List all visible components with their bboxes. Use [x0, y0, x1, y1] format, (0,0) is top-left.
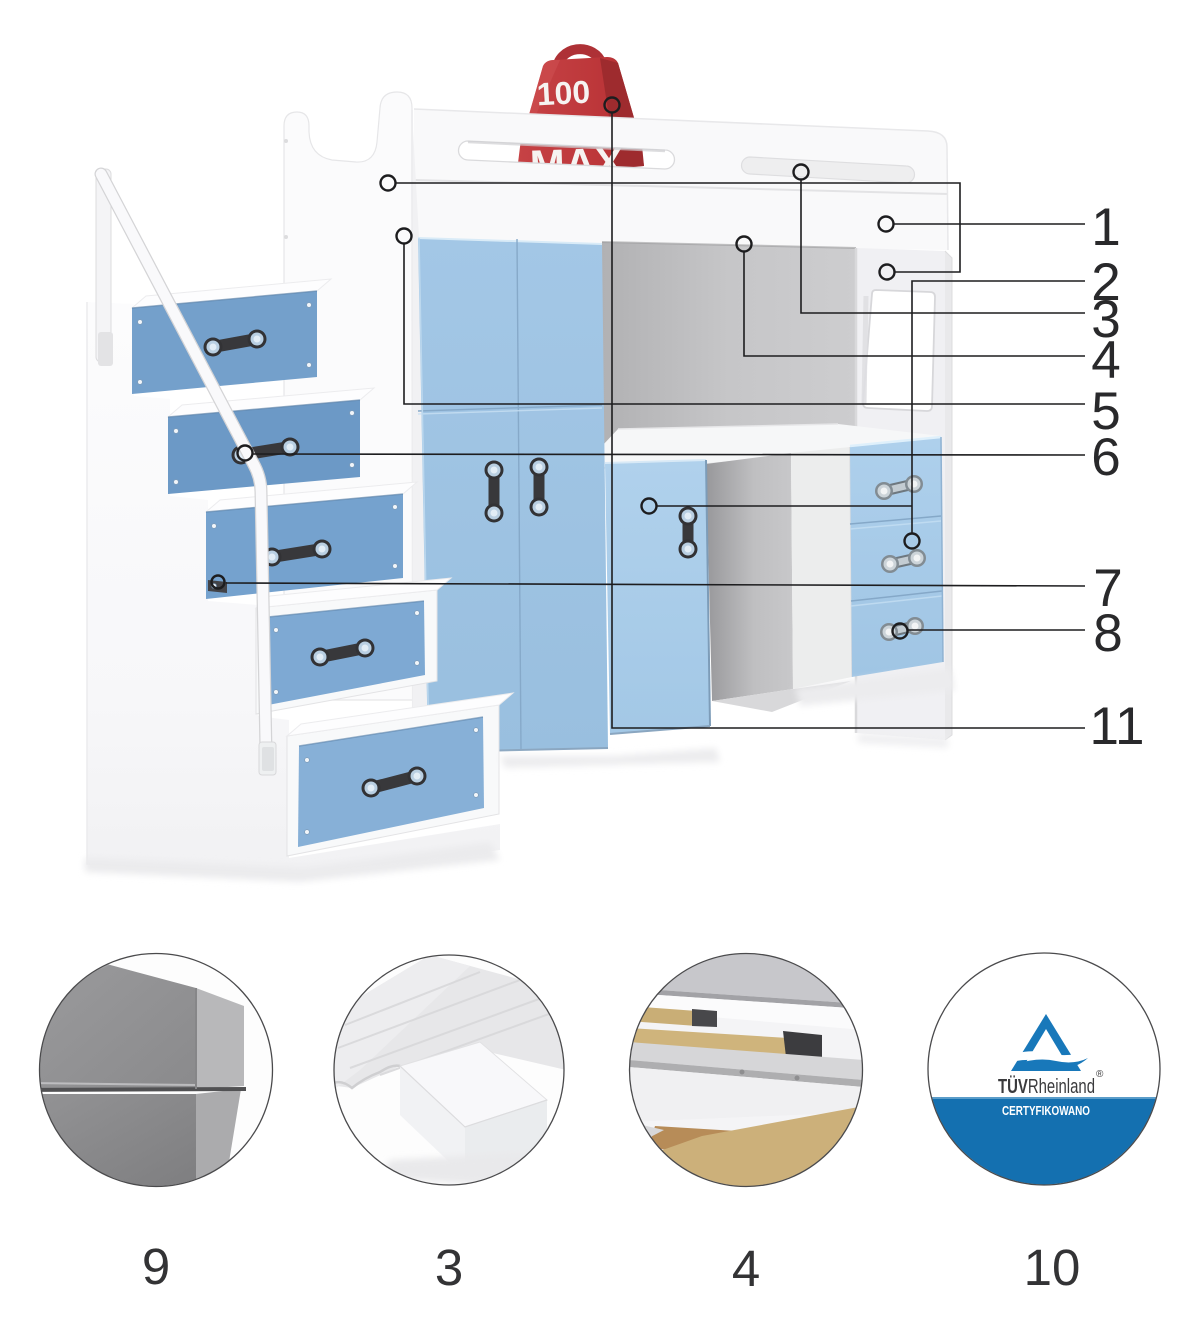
svg-text:10: 10 — [1024, 1239, 1081, 1296]
svg-text:8: 8 — [1093, 604, 1122, 663]
svg-text:®: ® — [1096, 1069, 1104, 1080]
svg-text:9: 9 — [142, 1238, 170, 1295]
svg-text:4: 4 — [732, 1240, 760, 1297]
svg-text:6: 6 — [1091, 428, 1120, 487]
svg-text:1: 1 — [1091, 198, 1120, 257]
svg-text:11: 11 — [1089, 697, 1144, 756]
svg-text:TÜVRheinland: TÜVRheinland — [998, 1075, 1095, 1098]
svg-text:CERTYFIKOWANO: CERTYFIKOWANO — [1002, 1103, 1090, 1118]
svg-text:100: 100 — [536, 74, 591, 113]
svg-text:3: 3 — [435, 1239, 463, 1296]
